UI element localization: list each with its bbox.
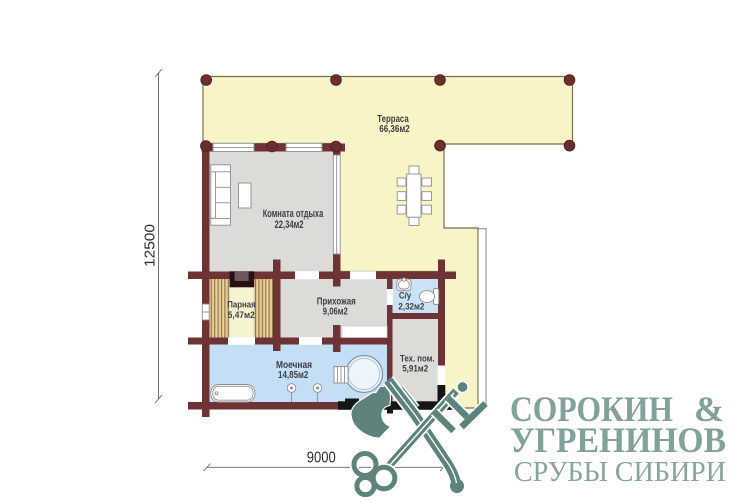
svg-text:Тех. пом.: Тех. пом. — [400, 353, 435, 363]
svg-text:14,85м2: 14,85м2 — [278, 370, 309, 381]
svg-text:СРУБЫ СИБИРИ: СРУБЫ СИБИРИ — [514, 456, 726, 488]
svg-text:2,32м2: 2,32м2 — [398, 301, 424, 312]
svg-text:9000: 9000 — [307, 450, 336, 467]
svg-text:22,34м2: 22,34м2 — [275, 219, 304, 231]
svg-text:12500: 12500 — [142, 224, 159, 267]
svg-text:УГРЕНИНОВ: УГРЕНИНОВ — [510, 420, 726, 460]
svg-text:66,36м2: 66,36м2 — [379, 124, 410, 135]
svg-text:5,91м2: 5,91м2 — [402, 364, 428, 375]
svg-text:5,47м2: 5,47м2 — [228, 310, 255, 321]
svg-text:С/у: С/у — [399, 290, 411, 300]
svg-text:9,06м2: 9,06м2 — [323, 307, 348, 318]
